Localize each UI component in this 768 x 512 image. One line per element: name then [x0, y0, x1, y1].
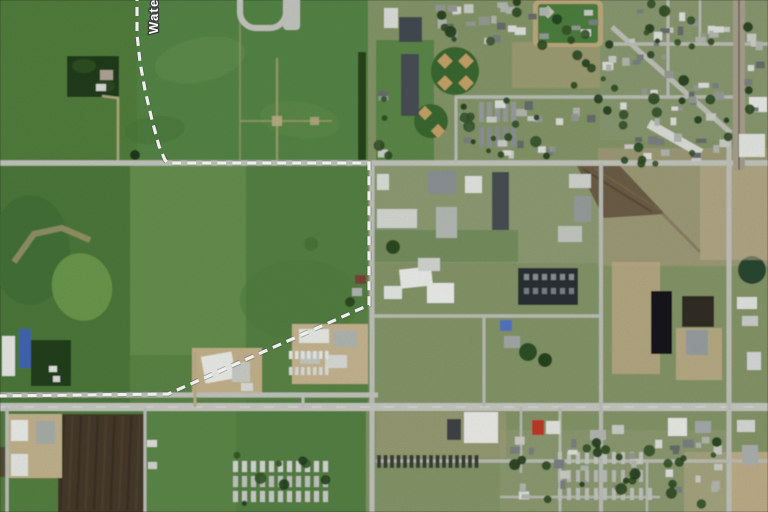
grain-overlay: [0, 0, 768, 512]
boundary-road-label: Wate: [146, 0, 161, 34]
screenshot-stage: Wate: [0, 0, 768, 512]
aerial-map-view[interactable]: Wate: [0, 0, 768, 512]
